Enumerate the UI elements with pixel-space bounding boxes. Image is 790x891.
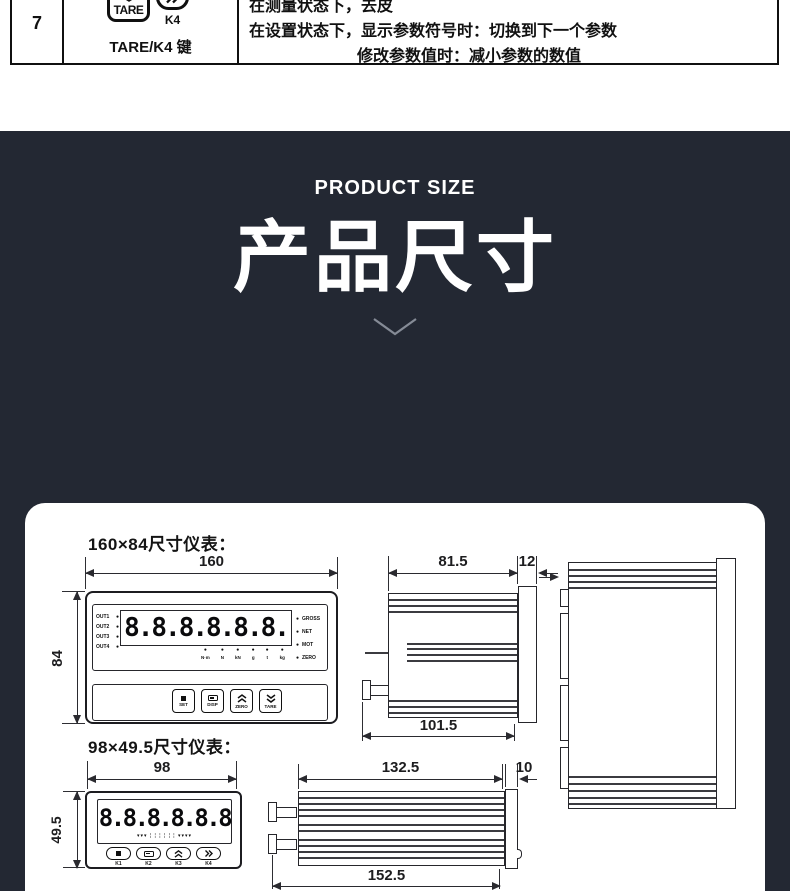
vent-slot — [299, 845, 504, 847]
dim-total-depth-label: 152.5 — [273, 867, 500, 884]
vent-slot — [569, 776, 716, 778]
dimension-line-total-depth — [363, 736, 514, 737]
led-dot: ● — [296, 656, 299, 661]
dim-height-label: 49.5 — [48, 810, 64, 850]
dimension-line-width — [88, 779, 236, 780]
square-icon — [181, 696, 186, 701]
vent-slot — [299, 815, 504, 817]
vent-slot — [389, 611, 517, 613]
section2-label: 98×49.5尺寸仪表： — [88, 733, 241, 758]
out1-indicator: OUT1● — [96, 614, 119, 620]
meter160-digit-window: 8.8.8.8.8.8. — [120, 610, 292, 646]
led-dot: ● — [221, 648, 224, 653]
disp-key: DISP — [201, 689, 224, 713]
function-description-cell: 在测量状态下，去皮 在设置状态下，显示参数符号时：切换到下一个参数 修改参数值时… — [239, 0, 777, 63]
out3-indicator: OUT3● — [96, 634, 119, 640]
unit-item: ●kg — [280, 648, 285, 660]
k1-key: K1 — [106, 847, 131, 867]
unit-item: ●g — [252, 648, 255, 660]
terminal-strip — [299, 824, 504, 826]
vent-slot — [569, 575, 716, 577]
gross-indicator: ●GROSS — [296, 616, 332, 622]
seven-segment-display: 8.8.8.8.8.8. — [121, 611, 291, 645]
display-icon — [144, 851, 154, 857]
k3-key: K3 — [166, 847, 191, 867]
led-dot: ● — [236, 648, 239, 653]
meter98-buttons: K1 K2 K3 K4 — [106, 847, 221, 867]
dim-arrow — [550, 573, 559, 581]
key-caption: TARE/K4 键 — [64, 36, 237, 57]
mounting-clip — [560, 613, 569, 679]
section1-label: 160×84尺寸仪表： — [88, 530, 236, 555]
dim-width-label: 98 — [88, 759, 236, 776]
dim-arrow-tail — [527, 779, 537, 780]
connector-plug — [370, 685, 389, 696]
vent-slot — [569, 581, 716, 583]
connector-plug — [276, 807, 297, 818]
meter160-top-view — [568, 562, 717, 809]
out4-indicator: OUT4● — [96, 644, 119, 650]
set-key: SET — [172, 689, 195, 713]
k2-key: K2 — [136, 847, 161, 867]
led-dot: ● — [116, 645, 119, 650]
connector-plug — [276, 839, 297, 850]
unit-item: ●t — [266, 648, 269, 660]
terminal-strip — [407, 648, 517, 650]
dimension-line-total-depth — [273, 886, 500, 887]
extension-line — [536, 556, 537, 584]
section-banner: PRODUCT SIZE 产品尺寸 160×84尺寸仪表： 160 8.8.8.… — [0, 131, 790, 891]
meter160-buttons: SET DISP ZERO TARE — [172, 689, 282, 713]
dim-total-depth-label: 101.5 — [363, 717, 514, 734]
key-function-table: 7 TARE K4 TARE/K4 键 在测量状态下，去皮 在设置状态下，显示参… — [10, 0, 779, 65]
vent-slot — [299, 797, 504, 799]
terminal-strip — [407, 643, 517, 645]
chevron-double-up-icon — [236, 694, 248, 703]
led-dot: ● — [296, 643, 299, 648]
vent-slot — [299, 857, 504, 859]
out2-indicator: OUT2● — [96, 624, 119, 630]
dim-arrow-tail — [539, 577, 550, 578]
bezel-latch — [517, 849, 522, 859]
vent-slot — [569, 797, 716, 799]
chevron-double-right-icon — [165, 0, 180, 4]
led-dot: ● — [204, 648, 207, 653]
vent-slot — [569, 790, 716, 792]
led-dot: ● — [296, 617, 299, 622]
vent-slot — [299, 803, 504, 805]
net-indicator: ●NET — [296, 629, 332, 635]
dim-width-label: 160 — [86, 553, 337, 570]
vent-slot — [389, 706, 517, 708]
led-dot: ● — [116, 615, 119, 620]
led-dot: ● — [116, 625, 119, 630]
zero-key: ZERO — [230, 689, 253, 713]
vent-slot — [299, 809, 504, 811]
dim-bezel-label: 12 — [518, 553, 536, 570]
product-detail-page: 7 TARE K4 TARE/K4 键 在测量状态下，去皮 在设置状态下，显示参… — [0, 0, 790, 891]
dimensions-card: 160×84尺寸仪表： 160 8.8.8.8.8.8. OUT1● OUT2●… — [25, 503, 765, 891]
meter160-top-bezel — [716, 558, 736, 809]
mot-indicator: ●MOT — [296, 642, 332, 648]
unit-item: ●kN — [235, 648, 241, 660]
dim-body-depth-label: 81.5 — [389, 553, 517, 570]
led-dot: ● — [252, 648, 255, 653]
description-line-2: 在设置状态下，显示参数符号时：切换到下一个参数 — [249, 17, 617, 41]
vent-slot — [569, 587, 716, 589]
led-dot: ● — [281, 648, 284, 653]
tare-key-label: TARE — [114, 3, 144, 17]
tare-key-icon: TARE — [107, 0, 150, 22]
k4-key: K4 — [196, 847, 221, 867]
vent-slot — [389, 599, 517, 601]
vent-slot — [299, 839, 504, 841]
led-dot: ● — [296, 630, 299, 635]
terminal-pin — [365, 652, 388, 654]
vent-slot — [389, 605, 517, 607]
dim-height-label: 84 — [49, 650, 66, 667]
dim-bezel-label: 10 — [514, 759, 534, 776]
chevron-double-right-icon — [204, 849, 213, 858]
vent-slot — [569, 783, 716, 785]
chevron-double-down-icon — [265, 694, 277, 703]
vent-slot — [389, 700, 517, 702]
annunciator-row: ▾▾▾ ¦ ¦ ¦ ¦ ¦ ¦ ▾▾▾▾ — [97, 833, 232, 839]
terminal-strip — [407, 660, 517, 662]
k4-key-icon — [156, 0, 189, 10]
unit-item: ●N·m — [201, 648, 210, 660]
dimension-line-height — [77, 792, 78, 868]
display-icon — [208, 695, 218, 701]
chevron-double-down-icon — [118, 0, 140, 2]
banner-title: 产品尺寸 — [0, 195, 790, 307]
led-dot: ● — [266, 648, 269, 653]
tare-key: TARE — [259, 689, 282, 713]
unit-item: ●N — [221, 648, 224, 660]
chevron-double-up-icon — [173, 850, 184, 858]
dimension-line-depth — [299, 779, 502, 780]
extension-line — [505, 764, 506, 787]
vent-slot — [299, 851, 504, 853]
mounting-clip — [560, 747, 569, 789]
dimension-line-width — [86, 573, 337, 574]
meter160-bezel — [518, 586, 537, 723]
table-row-number: 7 — [12, 0, 64, 63]
vent-slot — [569, 569, 716, 571]
mounting-clip — [560, 589, 569, 607]
mounting-clip — [560, 685, 569, 741]
row-number-text: 7 — [32, 13, 42, 34]
chevron-down-icon — [372, 317, 418, 337]
dimension-line-depth — [389, 573, 517, 574]
zero-indicator: ●ZERO — [296, 655, 332, 661]
description-line-3: 修改参数值时：减小参数的数值 — [357, 42, 581, 66]
key-cell: TARE K4 TARE/K4 键 — [64, 0, 239, 63]
vent-slot — [389, 712, 517, 714]
dim-body-depth-label: 132.5 — [299, 759, 502, 776]
terminal-strip — [407, 654, 517, 656]
terminal-strip — [299, 830, 504, 832]
square-icon — [116, 851, 121, 856]
dimension-line-height — [77, 592, 78, 723]
unit-indicator-row: ●N·m ●N ●kN ●g ●t ●kg — [201, 648, 285, 660]
vent-slot — [569, 803, 716, 805]
k4-key-label: K4 — [156, 13, 189, 27]
description-line-1: 在测量状态下，去皮 — [249, 0, 393, 16]
led-dot: ● — [116, 635, 119, 640]
